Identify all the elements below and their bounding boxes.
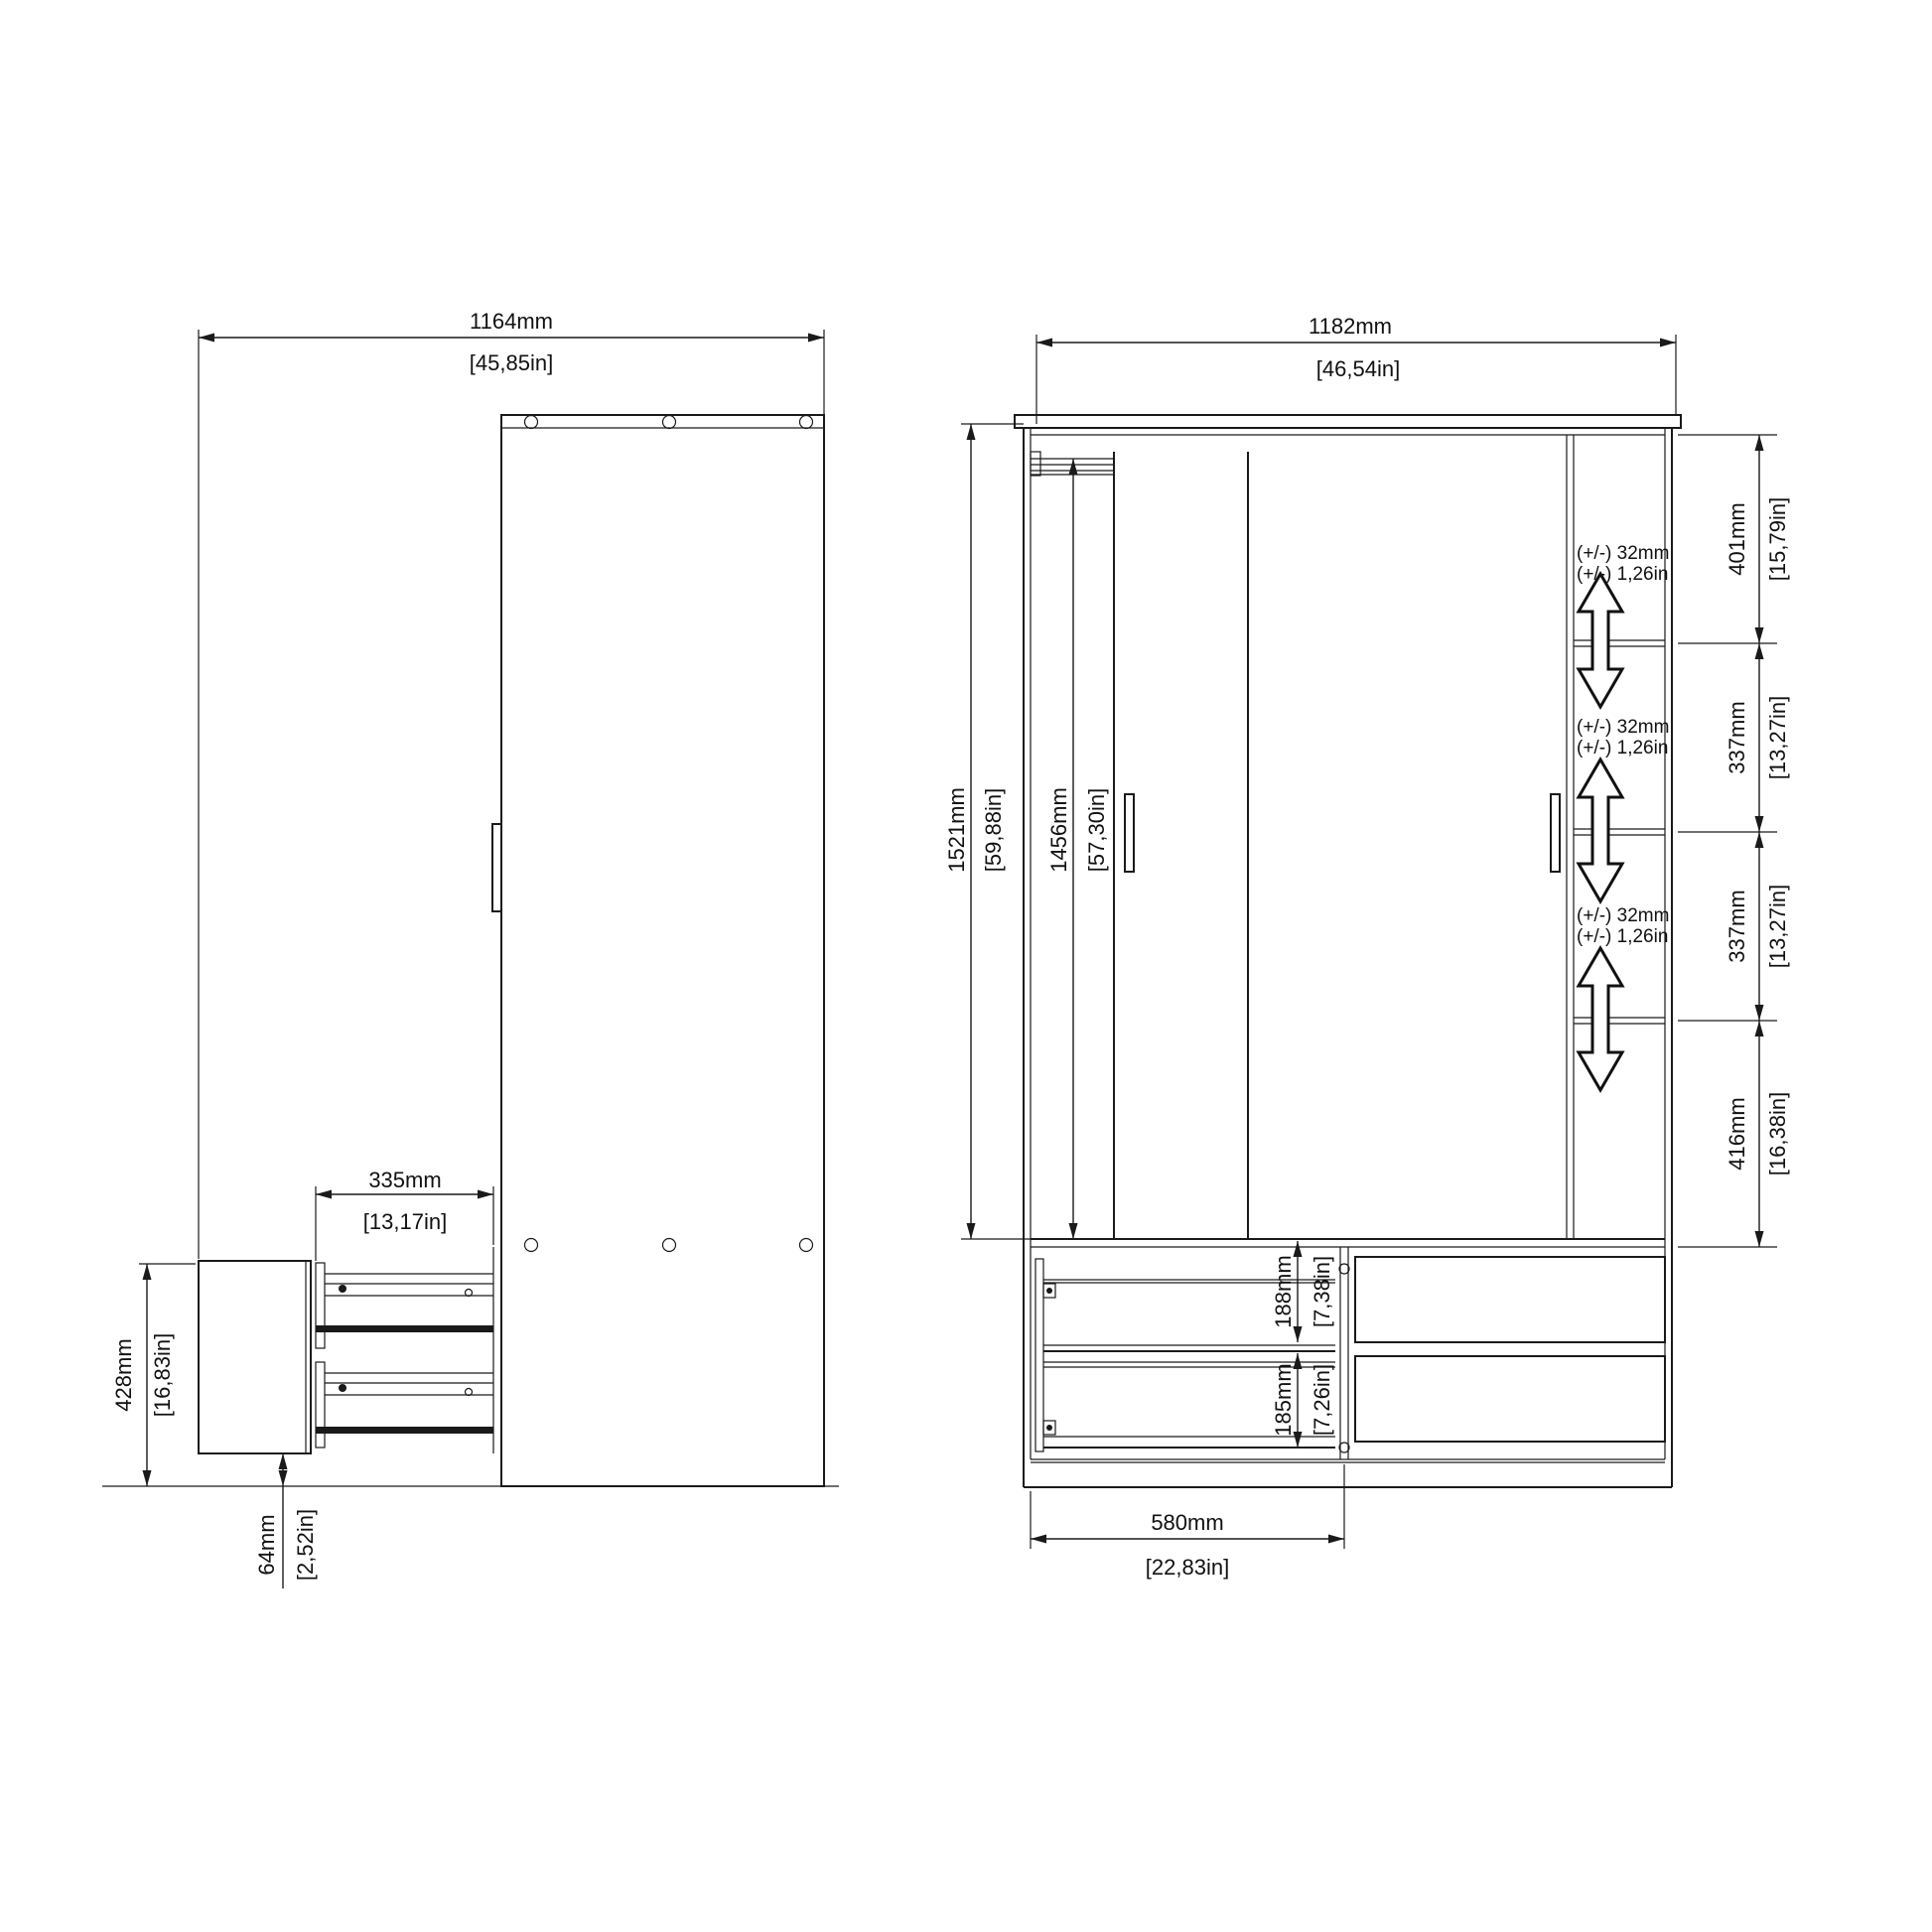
wardrobe-dimension-drawing: 1164mm [45,85in] bbox=[0, 0, 1932, 1932]
shelf-adjust-note-1: (+/-) 32mm (+/-) 1,26in bbox=[1577, 543, 1669, 707]
open-drawer-front bbox=[199, 1261, 311, 1453]
dim-shelf-section-2: 337mm [13,27in] bbox=[1725, 643, 1790, 832]
cam-lock-icon bbox=[800, 1239, 813, 1252]
drawer-slide-lower bbox=[316, 1362, 493, 1448]
screw-icon bbox=[1046, 1288, 1052, 1294]
dim-drawer-extension-mm: 335mm bbox=[368, 1168, 441, 1192]
dim-overall-height: 1521mm [59,88in] bbox=[944, 424, 1031, 1239]
drawer-section bbox=[1024, 1239, 1672, 1487]
dim-shelf-section-mm: 416mm bbox=[1725, 1097, 1749, 1170]
shelf-adjust-arrow-icon bbox=[1579, 759, 1622, 901]
screw-icon bbox=[1046, 1425, 1052, 1431]
dim-overall-width-mm: 1182mm bbox=[1309, 314, 1392, 339]
dim-drawer-top-height: 188mm [7,38in] bbox=[1271, 1241, 1334, 1342]
technical-drawing-page: 1164mm [45,85in] bbox=[0, 0, 1932, 1932]
dim-door-height-mm: 1456mm bbox=[1046, 787, 1071, 873]
dim-shelf-section-1: 401mm [15,79in] bbox=[1725, 435, 1790, 643]
drawer-front-bottom bbox=[1355, 1356, 1665, 1442]
cam-lock-icon bbox=[800, 416, 813, 429]
cam-lock-fittings-middle bbox=[525, 1239, 813, 1252]
shelf-adjust-arrow-icon bbox=[1579, 948, 1622, 1090]
cam-lock-icon bbox=[525, 1239, 538, 1252]
shelf-adjust-note-3: (+/-) 32mm (+/-) 1,26in bbox=[1577, 905, 1669, 1090]
shelf-adjust-note-line1: (+/-) 32mm bbox=[1577, 717, 1669, 738]
top-panel bbox=[1015, 415, 1681, 428]
dim-plinth-clearance: 64mm [2,52in] bbox=[254, 1453, 318, 1588]
dim-drawer-width: 580mm [22,83in] bbox=[1031, 1464, 1344, 1580]
dim-shelf-section-mm: 401mm bbox=[1725, 502, 1749, 575]
shelf-adjust-note-line2: (+/-) 1,26in bbox=[1577, 926, 1668, 947]
dim-shelf-section-in: [13,27in] bbox=[1765, 885, 1790, 968]
dim-overall-depth-in: [45,85in] bbox=[470, 350, 553, 375]
dim-shelf-section-mm: 337mm bbox=[1725, 701, 1749, 773]
dim-overall-height-in: [59,88in] bbox=[981, 788, 1006, 872]
dim-drawer-width-in: [22,83in] bbox=[1146, 1555, 1229, 1580]
cam-lock-icon bbox=[663, 416, 676, 429]
dim-overall-depth: 1164mm [45,85in] bbox=[199, 309, 824, 1259]
side-view: 1164mm [45,85in] bbox=[102, 309, 839, 1588]
door-handle bbox=[492, 824, 501, 911]
dim-shelf-sections: 401mm [15,79in] 337mm [13,27in] 337mm [1… bbox=[1678, 435, 1790, 1247]
screw-icon bbox=[339, 1384, 346, 1392]
dim-plinth-clearance-mm: 64mm bbox=[254, 1514, 279, 1575]
dim-door-height: 1456mm [57,30in] bbox=[1046, 459, 1109, 1239]
shelf-adjust-note-line1: (+/-) 32mm bbox=[1577, 543, 1669, 564]
dim-drawer-unit-height-in: [16,83in] bbox=[150, 1333, 175, 1417]
dim-drawer-top-mm: 188mm bbox=[1271, 1255, 1296, 1327]
dim-drawer-unit-height: 428mm [16,83in] bbox=[111, 1264, 196, 1486]
shelf-adjust-note-2: (+/-) 32mm (+/-) 1,26in bbox=[1577, 717, 1669, 901]
cam-lock-fittings-top bbox=[525, 416, 813, 429]
dim-overall-width-in: [46,54in] bbox=[1316, 356, 1400, 381]
sliding-doors bbox=[1114, 452, 1560, 1239]
dim-shelf-section-4: 416mm [16,38in] bbox=[1725, 1021, 1790, 1247]
dim-plinth-clearance-in: [2,52in] bbox=[293, 1509, 318, 1581]
dim-shelf-section-in: [15,79in] bbox=[1765, 497, 1790, 581]
dim-overall-depth-mm: 1164mm bbox=[470, 309, 553, 334]
dim-shelf-section-in: [16,38in] bbox=[1765, 1092, 1790, 1175]
shelf-adjust-note-line2: (+/-) 1,26in bbox=[1577, 738, 1668, 759]
cam-lock-icon bbox=[663, 1239, 676, 1252]
drawer-slide-upper bbox=[316, 1263, 493, 1348]
dim-drawer-unit-height-mm: 428mm bbox=[111, 1338, 136, 1411]
dim-door-height-in: [57,30in] bbox=[1084, 788, 1109, 872]
door-handle bbox=[1125, 794, 1134, 872]
cam-lock-icon bbox=[525, 416, 538, 429]
dim-drawer-extension-in: [13,17in] bbox=[363, 1209, 447, 1234]
door-handle bbox=[1551, 794, 1560, 872]
dim-drawer-extension: 335mm [13,17in] bbox=[316, 1168, 493, 1261]
dim-drawer-bottom-in: [7,26in] bbox=[1310, 1364, 1334, 1436]
dim-overall-width: 1182mm [46,54in] bbox=[1036, 314, 1676, 424]
screw-icon bbox=[339, 1285, 346, 1293]
front-view: 1182mm [46,54in] bbox=[944, 314, 1790, 1580]
shelf-adjust-note-line1: (+/-) 32mm bbox=[1577, 905, 1669, 926]
dim-drawer-width-mm: 580mm bbox=[1151, 1510, 1223, 1535]
dim-overall-height-mm: 1521mm bbox=[944, 787, 969, 873]
dim-shelf-section-mm: 337mm bbox=[1725, 890, 1749, 962]
side-panel bbox=[501, 415, 824, 1486]
dim-shelf-section-in: [13,27in] bbox=[1765, 696, 1790, 779]
dim-shelf-section-3: 337mm [13,27in] bbox=[1725, 832, 1790, 1021]
dim-drawer-top-in: [7,38in] bbox=[1310, 1256, 1334, 1327]
shelf-adjust-note-line2: (+/-) 1,26in bbox=[1577, 564, 1668, 585]
dim-drawer-bottom-mm: 185mm bbox=[1271, 1363, 1296, 1436]
drawer-front-top bbox=[1355, 1257, 1665, 1342]
